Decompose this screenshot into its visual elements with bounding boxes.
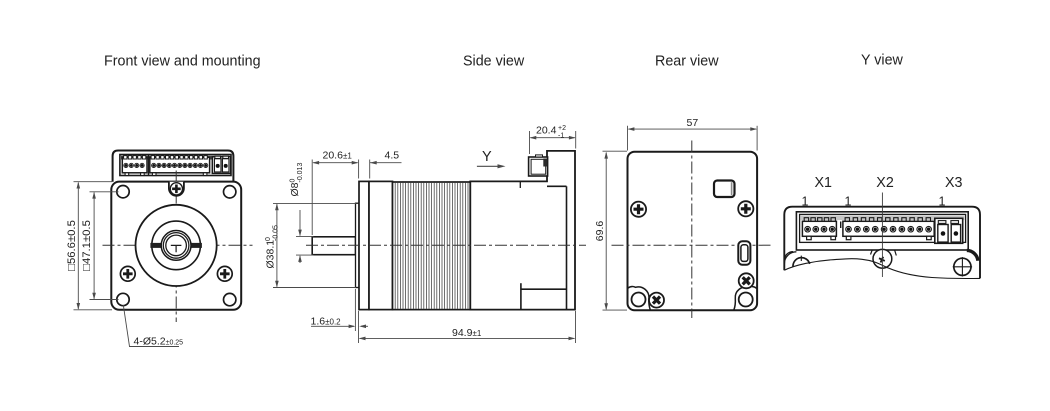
svg-text:20.6±1: 20.6±1 [323,150,353,162]
svg-text:X2: X2 [876,175,894,191]
svg-text:Ø8: Ø8 [289,182,301,196]
svg-text:0: 0 [289,179,296,183]
svg-text:+2: +2 [558,125,566,132]
svg-text:Side view: Side view [463,54,525,70]
svg-text:X3: X3 [945,175,963,191]
svg-text:Front view and mounting: Front view and mounting [104,54,261,70]
svg-text:□56.6±0.5: □56.6±0.5 [66,220,78,271]
svg-text:-0.013: -0.013 [297,163,304,183]
svg-text:69.6: 69.6 [594,221,606,242]
svg-text:□47.1±0.5: □47.1±0.5 [81,220,93,271]
svg-text:1: 1 [845,195,852,209]
svg-text:-0.05: -0.05 [272,225,279,241]
svg-text:1: 1 [802,195,809,209]
svg-text:Ø38.1: Ø38.1 [265,240,277,269]
svg-text:1.6±0.2: 1.6±0.2 [311,315,342,327]
svg-text:4.5: 4.5 [385,150,400,162]
svg-text:Rear view: Rear view [655,54,719,70]
svg-text:Y view: Y view [861,52,904,68]
svg-text:57: 57 [687,117,699,129]
svg-text:-1: -1 [558,132,564,139]
svg-text:X1: X1 [815,175,833,191]
svg-text:Y: Y [482,149,492,165]
svg-text:0: 0 [265,237,272,241]
svg-text:94.9±1: 94.9±1 [452,327,482,339]
svg-text:20.4: 20.4 [536,125,557,137]
svg-text:1: 1 [939,195,946,209]
